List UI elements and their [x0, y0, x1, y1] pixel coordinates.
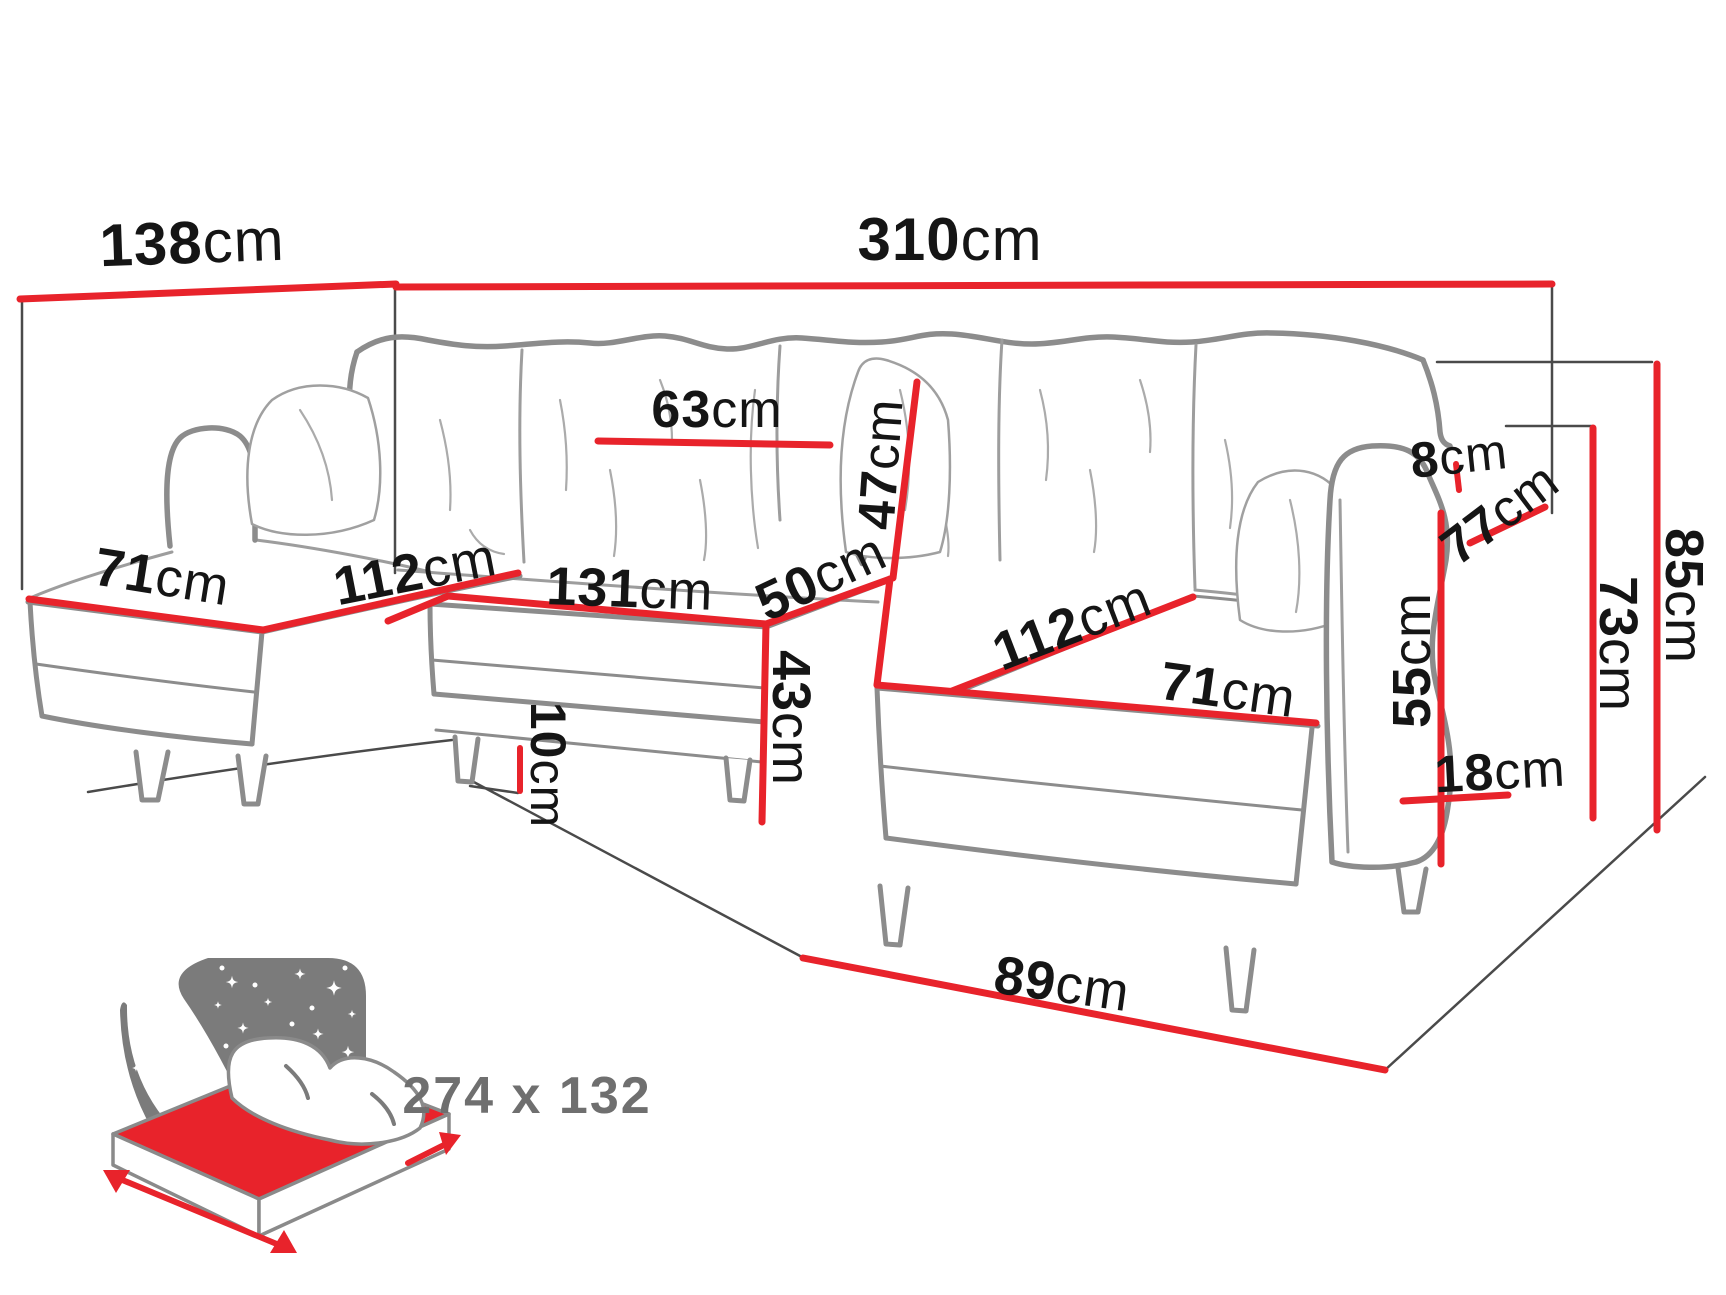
dimension-value: 73 — [1588, 576, 1648, 638]
dimension-label-armrest-width: 18cm — [1433, 743, 1567, 802]
dimension-label-back-cushion-width: 63cm — [651, 384, 782, 436]
dimension-unit: cm — [151, 546, 233, 617]
dimension-label-total-width: 310cm — [857, 210, 1042, 270]
diagram-canvas — [0, 0, 1726, 1295]
dimension-unit: cm — [1493, 740, 1567, 802]
left-throw-pillow — [247, 386, 380, 535]
dimension-unit: cm — [1382, 592, 1442, 666]
dimension-label-leg-height: 10cm — [523, 702, 573, 828]
line-63 — [598, 441, 830, 445]
dimension-unit: cm — [639, 559, 715, 622]
dimension-value: 43 — [761, 650, 821, 712]
right-chaise — [877, 582, 1332, 1011]
dimension-label-backrest-cushion-height: 47cm — [850, 397, 911, 531]
dimension-value: 71 — [1156, 651, 1226, 719]
dimension-unit: cm — [1588, 638, 1648, 712]
dimension-value: 138 — [98, 209, 203, 280]
dimension-unit: cm — [1218, 659, 1300, 729]
dimension-unit: cm — [1654, 590, 1714, 664]
dimension-value: 71 — [90, 537, 161, 606]
line-seat-edge-right — [877, 579, 890, 685]
star-icon — [154, 1092, 162, 1100]
line-310 — [396, 284, 1552, 287]
dimension-value: 85 — [1654, 528, 1714, 590]
dimension-unit: cm — [201, 206, 285, 276]
dimension-label-middle-seat-width: 131cm — [546, 559, 715, 619]
star-icon — [141, 1033, 151, 1043]
dimension-value: 310 — [857, 206, 960, 273]
dimension-value: 55 — [1382, 666, 1442, 728]
dimension-value: 131 — [545, 556, 640, 619]
left-armrest — [167, 428, 255, 546]
sleeping-area-size: 274 x 132 — [402, 1070, 651, 1122]
dimension-unit: cm — [711, 381, 782, 439]
dimension-value: 18 — [1433, 743, 1496, 804]
sofa-dimension-diagram: 138cm 310cm 63cm 47cm 8cm 77cm 71cm 112c… — [0, 0, 1726, 1295]
dimension-label-armrest-gap: 8cm — [1408, 426, 1510, 486]
dimension-label-armrest-height-from-seat: 55cm — [1385, 592, 1439, 728]
dimension-label-total-height: 85cm — [1657, 528, 1711, 664]
dimension-unit: cm — [1052, 953, 1134, 1023]
dimension-unit: cm — [852, 397, 915, 472]
dimension-unit: cm — [761, 712, 821, 786]
dimension-label-armrest-height: 73cm — [1591, 576, 1645, 712]
dimension-value: 10 — [520, 702, 576, 760]
dimension-value: 47 — [847, 468, 909, 532]
dimension-label-left-side-depth: 138cm — [98, 210, 285, 276]
dimension-value: 63 — [651, 381, 711, 439]
dimension-unit: cm — [520, 759, 576, 828]
line-138 — [20, 284, 396, 299]
dimension-value: 89 — [990, 945, 1060, 1013]
dimension-unit: cm — [961, 206, 1043, 273]
cushion-creases — [440, 380, 1232, 560]
dimension-label-seat-height: 43cm — [764, 650, 818, 786]
dimension-unit: cm — [1436, 423, 1510, 486]
